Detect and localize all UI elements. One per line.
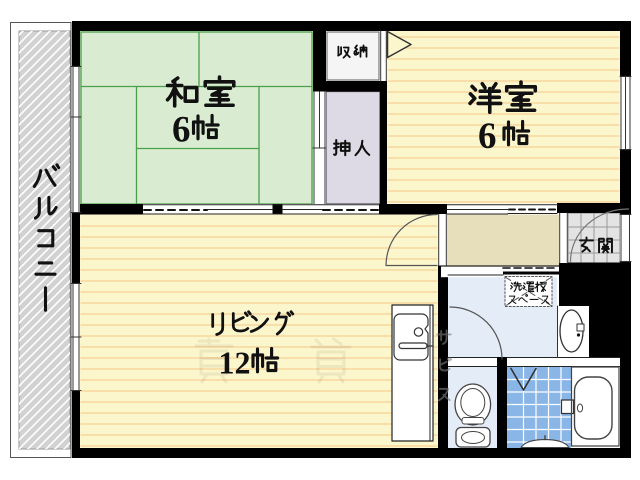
svg-text:12: 12 (219, 345, 251, 381)
svg-text:6: 6 (172, 110, 191, 151)
svg-text:6: 6 (478, 116, 497, 157)
